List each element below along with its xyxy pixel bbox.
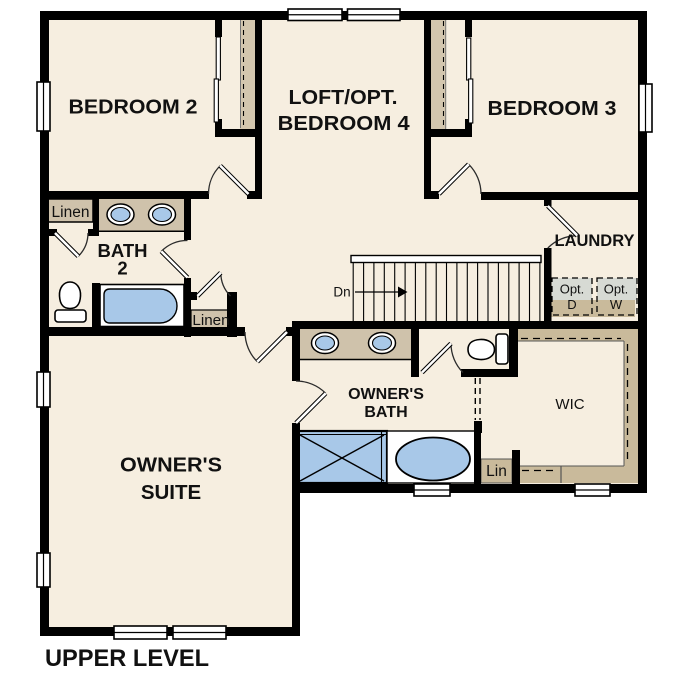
svg-text:Dn: Dn — [333, 285, 350, 300]
svg-text:Linen: Linen — [192, 312, 229, 329]
svg-text:Lin: Lin — [486, 463, 507, 480]
svg-text:SUITE: SUITE — [141, 481, 201, 504]
svg-text:D: D — [567, 297, 576, 312]
svg-text:2: 2 — [117, 258, 127, 279]
svg-text:OWNER'S: OWNER'S — [120, 454, 222, 477]
svg-text:LOFT/OPT.: LOFT/OPT. — [289, 86, 398, 109]
svg-text:OWNER'S: OWNER'S — [348, 386, 424, 403]
svg-text:Opt.: Opt. — [604, 282, 629, 297]
svg-text:BATH: BATH — [364, 404, 407, 421]
svg-text:Linen: Linen — [52, 204, 90, 221]
svg-text:WIC: WIC — [555, 396, 584, 413]
svg-text:Opt.: Opt. — [560, 282, 585, 297]
svg-text:UPPER LEVEL: UPPER LEVEL — [45, 645, 209, 672]
svg-text:BEDROOM 2: BEDROOM 2 — [69, 96, 198, 119]
svg-text:W: W — [610, 297, 623, 312]
svg-text:LAUNDRY: LAUNDRY — [555, 231, 636, 250]
svg-text:BEDROOM 3: BEDROOM 3 — [488, 97, 617, 120]
svg-text:BEDROOM 4: BEDROOM 4 — [278, 112, 411, 135]
